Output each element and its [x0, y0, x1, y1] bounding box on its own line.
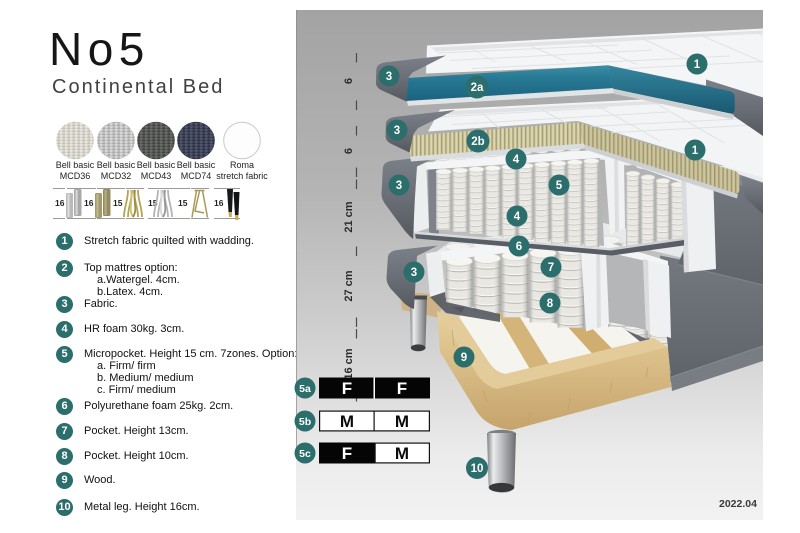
- svg-text:21 cm: 21 cm: [343, 201, 355, 232]
- svg-text:2a: 2a: [471, 82, 484, 94]
- svg-text:5b: 5b: [299, 416, 311, 428]
- svg-text:10: 10: [471, 463, 484, 475]
- svg-text:5: 5: [556, 180, 563, 192]
- svg-text:2022.04: 2022.04: [719, 498, 757, 510]
- svg-text:4: 4: [513, 154, 520, 166]
- svg-text:3: 3: [394, 125, 400, 137]
- svg-text:F: F: [342, 379, 352, 398]
- svg-text:3: 3: [386, 71, 392, 83]
- svg-text:F: F: [342, 444, 352, 463]
- svg-text:F: F: [397, 379, 407, 398]
- svg-text:6: 6: [343, 148, 355, 154]
- svg-text:2b: 2b: [471, 136, 484, 148]
- svg-text:3: 3: [411, 267, 417, 279]
- svg-text:M: M: [395, 412, 409, 431]
- svg-text:9: 9: [461, 352, 467, 364]
- svg-text:M: M: [395, 444, 409, 463]
- svg-text:4: 4: [514, 211, 521, 223]
- svg-text:27 cm: 27 cm: [343, 270, 355, 301]
- svg-text:6: 6: [343, 78, 355, 84]
- svg-text:16 cm: 16 cm: [343, 348, 355, 379]
- svg-text:6: 6: [516, 241, 522, 253]
- svg-text:5c: 5c: [299, 448, 311, 460]
- svg-text:5a: 5a: [299, 383, 311, 395]
- svg-text:1: 1: [692, 145, 699, 157]
- svg-text:1: 1: [694, 59, 701, 71]
- svg-text:3: 3: [396, 180, 402, 192]
- svg-text:7: 7: [548, 262, 554, 274]
- svg-text:8: 8: [547, 298, 554, 310]
- svg-text:M: M: [340, 412, 354, 431]
